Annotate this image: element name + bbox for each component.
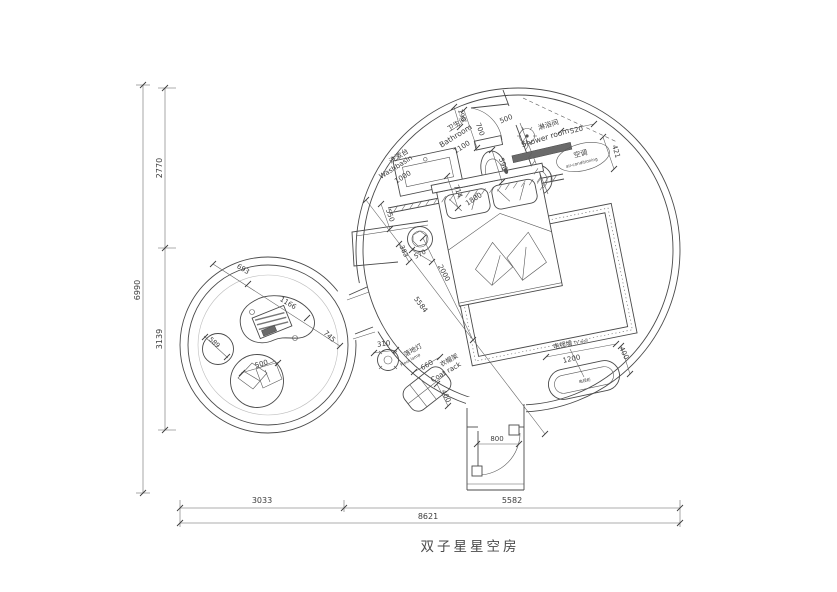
- dim-3033: 3033: [252, 496, 272, 505]
- dim-tick: [371, 350, 377, 356]
- dim-5582: 5582: [502, 496, 522, 505]
- floor-lamp-icon: [378, 350, 399, 371]
- floor-plan-page: 洗漱台Washbasin1000卫生间Bathroom1100190700500…: [0, 0, 837, 592]
- dim-tick: [627, 371, 633, 377]
- dim-2770: 2770: [155, 158, 164, 178]
- dim-8621: 8621: [418, 512, 438, 521]
- dim-3139: 3139: [155, 329, 164, 349]
- lounge-room-outer-wall: [180, 257, 356, 433]
- floor-plan-canvas: 洗漱台Washbasin1000卫生间Bathroom1100190700500…: [0, 0, 837, 592]
- door-jamb-block: [509, 425, 519, 435]
- dim-800: 800: [490, 435, 503, 443]
- dim-6990: 6990: [133, 280, 142, 300]
- dim-tick: [542, 431, 548, 437]
- nightstand: [408, 227, 433, 252]
- dim-tick: [445, 403, 451, 409]
- drawing-title: 双子星星空房: [421, 539, 520, 555]
- dim-tick: [210, 261, 216, 267]
- door-hinge-block: [472, 466, 482, 476]
- entrance: [466, 397, 526, 490]
